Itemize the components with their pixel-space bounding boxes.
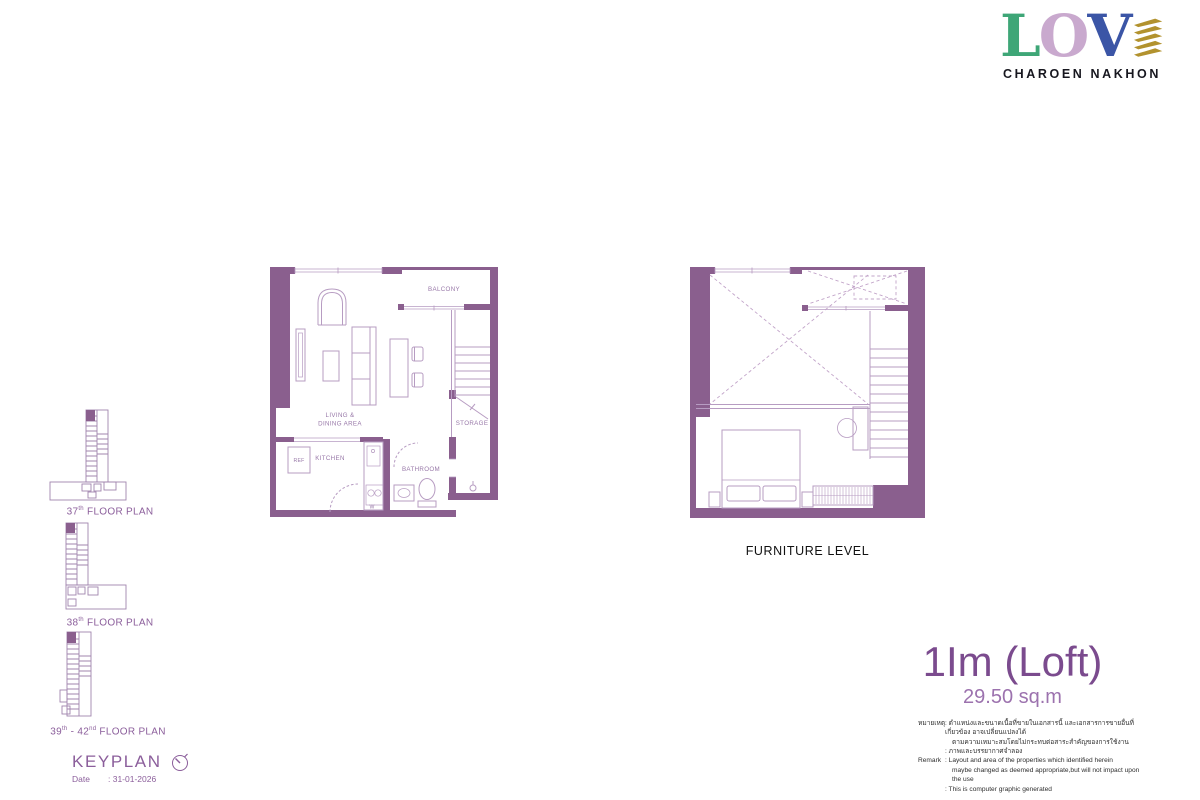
kitchen-label: KITCHEN	[315, 455, 345, 462]
remark-row: Remark : Layout and area of the properti…	[918, 756, 1140, 765]
highlighted-unit	[66, 523, 75, 533]
furniture-level-caption: FURNITURE LEVEL	[690, 544, 925, 558]
storage-label: STORAGE	[456, 420, 489, 427]
pillow	[727, 486, 760, 501]
keyplan-39-42-icon	[52, 628, 142, 723]
keyplan-title: KEYPLAN	[72, 752, 162, 772]
stairs	[452, 310, 491, 437]
pillow	[763, 486, 796, 501]
balcony-label: BALCONY	[428, 286, 460, 293]
sofa	[352, 327, 376, 405]
nightstand	[709, 492, 720, 507]
highlighted-unit	[86, 410, 95, 421]
remark-row: : This is computer graphic generated	[918, 785, 1140, 794]
bathroom-sink	[394, 485, 414, 501]
floor-plan-furniture-level	[690, 263, 925, 531]
keyplan-date: Date : 31-01-2026	[72, 774, 190, 784]
logo-word: L O V	[1000, 6, 1164, 66]
ref-label: REF	[294, 458, 305, 464]
bedroom-furniture	[709, 407, 873, 508]
washer-label: W	[369, 505, 374, 511]
kitchen-sink	[367, 446, 380, 466]
unit-type-name: 1Im (Loft)	[895, 640, 1130, 684]
logo-subtitle: CHAROEN NAKHON	[1000, 67, 1164, 81]
keyplan-38-label: 38th FLOOR PLAN	[40, 617, 180, 628]
brochure-page: L O V CHAROEN NAKHON	[0, 0, 1200, 800]
kitchen-fixtures	[288, 442, 383, 512]
logo-letter-o: O	[1039, 6, 1088, 66]
dining-chair	[412, 373, 423, 387]
living-label-1: LIVING &	[326, 412, 355, 419]
desk	[853, 407, 868, 450]
remark-row: ตามความเหมาะสมโดยไม่กระทบต่อสาระสำคัญของ…	[918, 738, 1140, 747]
keyplan-37-icon	[46, 408, 130, 503]
unit-info: 1Im (Loft) 29.50 sq.m	[895, 640, 1130, 709]
remark-row: : ภาพและบรรยากาศจำลอง	[918, 747, 1140, 756]
keyplan-38-icon	[52, 520, 136, 615]
windows	[294, 268, 464, 442]
dining-chair	[412, 347, 423, 361]
living-label-2: DINING AREA	[318, 421, 362, 428]
coffee-table	[323, 351, 339, 381]
bed	[722, 430, 800, 508]
highlighted-unit	[67, 632, 76, 643]
unit-area: 29.50 sq.m	[895, 686, 1130, 709]
tv-console	[296, 329, 305, 381]
void-opening	[710, 271, 907, 404]
toilet	[419, 479, 435, 500]
remark-row: หมายเหตุ : ตำแหน่งและขนาดเนื้อที่ขายในเอ…	[918, 719, 1140, 738]
project-logo: L O V CHAROEN NAKHON	[1000, 6, 1164, 81]
walls	[270, 267, 498, 517]
void-edge	[696, 405, 870, 409]
leaf-e-icon	[1134, 11, 1164, 63]
bathroom-label: BATHROOM	[402, 466, 440, 473]
dining-table	[390, 339, 408, 397]
keyplan-39-42-label: 39th - 42nd FLOOR PLAN	[28, 726, 188, 737]
compass-icon	[170, 752, 190, 772]
floor-plan-unit-level: BALCONY LIVING & DINING AREA STORAGE KIT…	[268, 263, 500, 519]
remark-block: หมายเหตุ : ตำแหน่งและขนาดเนื้อที่ขายในเอ…	[918, 719, 1140, 794]
door-stop	[470, 485, 476, 491]
logo-letter-l: L	[1000, 6, 1039, 66]
armchair	[318, 289, 346, 325]
kitchen-door-arc	[330, 484, 358, 512]
date-value: : 31-01-2026	[108, 774, 156, 784]
bathroom-door-arc	[394, 443, 418, 467]
remark-row: maybe changed as deemed appropriate,but …	[918, 766, 1140, 785]
nightstand	[802, 492, 813, 507]
date-label: Date	[72, 774, 108, 784]
keyplan-footer: KEYPLAN Date : 31-01-2026	[72, 752, 190, 784]
logo-letter-v: V	[1087, 6, 1130, 66]
keyplan-37-label: 37th FLOOR PLAN	[40, 506, 180, 517]
stairs	[870, 311, 908, 459]
desk-chair	[838, 419, 857, 438]
